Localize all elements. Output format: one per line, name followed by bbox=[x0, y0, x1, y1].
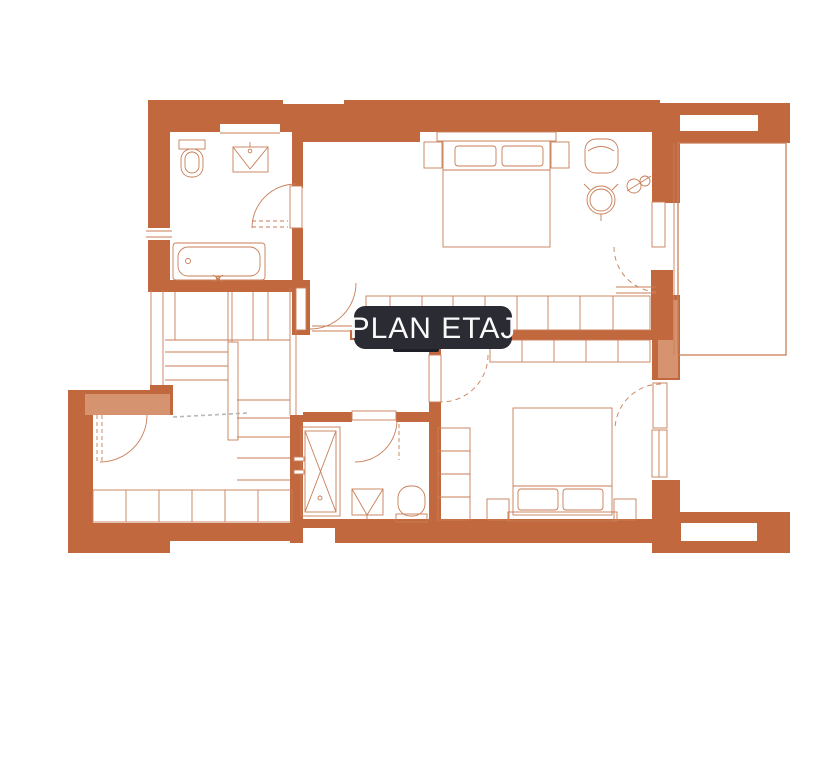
staircase bbox=[151, 288, 296, 480]
nightstand-upper-right bbox=[551, 142, 569, 168]
floor-plan-drawing: PLAN ETAJ bbox=[0, 0, 838, 768]
floor-plan: PLAN ETAJ bbox=[0, 0, 838, 768]
wardrobe-lower-side bbox=[438, 428, 470, 520]
nightstand-lower-left bbox=[487, 499, 509, 520]
wall-niche bbox=[220, 124, 280, 133]
nightstand-upper-left bbox=[424, 142, 442, 168]
bedroom-upper-hall-door[interactable] bbox=[296, 283, 356, 331]
window-right-wall bbox=[652, 430, 667, 477]
bedroom-lower-right-door[interactable] bbox=[615, 383, 667, 430]
bedroom-upper bbox=[296, 132, 665, 331]
bedroom-lower bbox=[429, 340, 667, 521]
armchair bbox=[585, 139, 618, 173]
bed-lower bbox=[508, 408, 617, 521]
sink-upper bbox=[233, 142, 268, 172]
bathroom-lower bbox=[294, 411, 427, 522]
room-lower-left-door[interactable] bbox=[97, 415, 147, 462]
bathroom-upper-door[interactable] bbox=[252, 184, 302, 228]
shower bbox=[294, 427, 340, 516]
bathroom-lower-door[interactable] bbox=[352, 411, 399, 462]
toilet-upper bbox=[179, 140, 205, 177]
bathroom-upper bbox=[173, 124, 302, 282]
round-table bbox=[584, 184, 618, 221]
decor-item bbox=[627, 176, 651, 193]
terrace bbox=[674, 143, 786, 355]
room-lower-left bbox=[93, 415, 292, 522]
plan-title-badge: PLAN ETAJ bbox=[350, 306, 517, 352]
cabinet-row bbox=[93, 490, 292, 522]
bedroom-lower-left-door[interactable] bbox=[429, 355, 488, 402]
bed-upper bbox=[437, 132, 556, 247]
sink-lower bbox=[352, 489, 383, 519]
bathtub bbox=[173, 243, 265, 282]
plan-title: PLAN ETAJ bbox=[350, 312, 517, 345]
toilet-lower bbox=[396, 486, 427, 522]
